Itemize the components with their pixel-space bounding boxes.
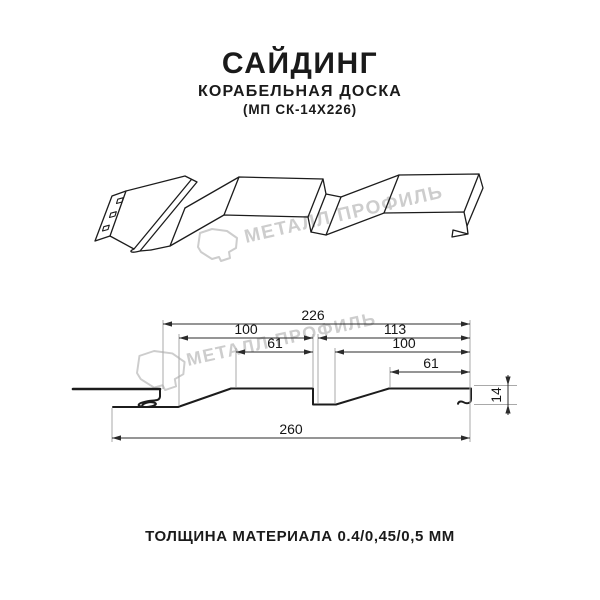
dim-label-height: 14: [488, 387, 504, 403]
dim-arrow: [461, 369, 470, 374]
thickness-note: ТОЛЩИНА МАТЕРИАЛА 0.4/0,45/0,5 ММ: [0, 528, 600, 545]
lock-fold: [110, 176, 197, 252]
dim-arrow: [390, 369, 399, 374]
dim-arrow: [461, 321, 470, 326]
dim-arrow: [505, 405, 510, 414]
profile-outline: [113, 389, 471, 408]
dim-arrow: [335, 349, 344, 354]
watermark-3d: МЕТАЛЛ ПРОФИЛЬ: [198, 182, 445, 261]
metall-profil-logo-icon: [198, 229, 237, 261]
dim-label-small-right: 61: [423, 355, 439, 371]
dim-arrow: [304, 349, 313, 354]
siding-product-drawing-page: САЙДИНГ КОРАБЕЛЬНАЯ ДОСКА (МП СК-14Х226)…: [0, 0, 600, 600]
dim-label-bottom-width: 260: [279, 421, 303, 437]
drawing-canvas: МЕТАЛЛ ПРОФИЛЬ МЕТАЛЛ ПРОФИЛЬ: [0, 0, 600, 600]
watermark-text: МЕТАЛЛ ПРОФИЛЬ: [242, 182, 445, 248]
dim-arrow: [163, 321, 172, 326]
dim-arrow: [505, 377, 510, 386]
dim-label-inner-left: 61: [267, 335, 283, 351]
dim-arrow: [461, 435, 470, 440]
dim-label-top-width: 226: [301, 307, 325, 323]
dim-label-inner-right: 100: [392, 335, 416, 351]
dim-arrow: [461, 349, 470, 354]
dim-label-upper-left: 100: [234, 321, 258, 337]
dim-arrow: [112, 435, 121, 440]
metall-profil-logo-icon: [137, 351, 185, 390]
cross-section-view: [73, 389, 471, 408]
dim-arrow: [179, 335, 188, 340]
dim-arrow: [461, 335, 470, 340]
